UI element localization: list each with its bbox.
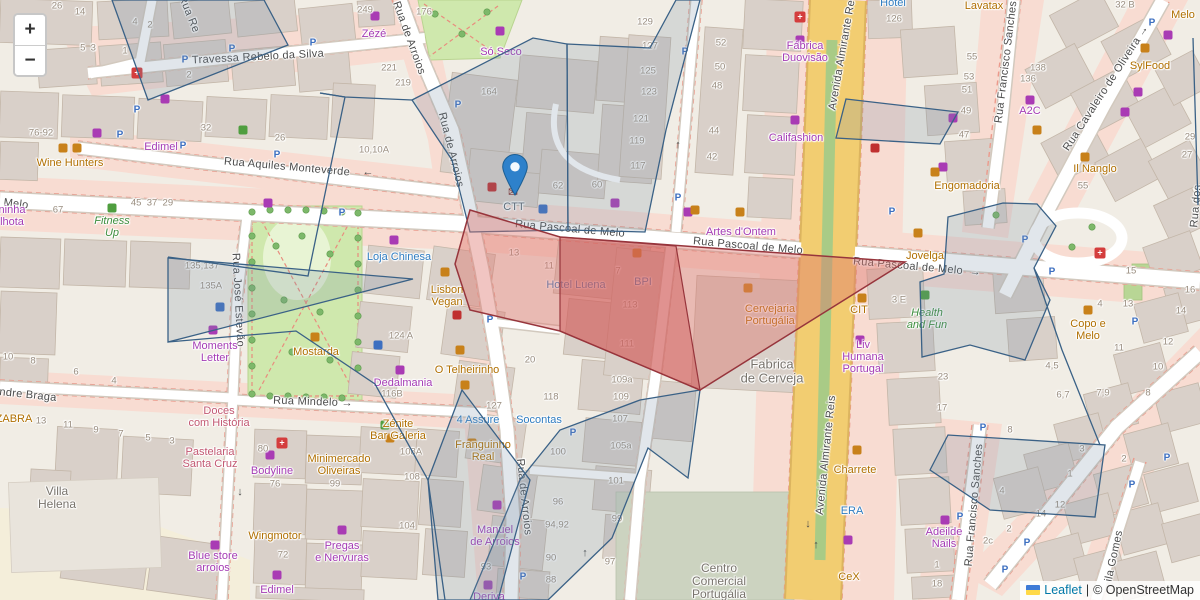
overlay-polygon[interactable] <box>112 0 288 100</box>
overlay-polygon[interactable] <box>168 258 413 342</box>
ukraine-flag-icon <box>1026 585 1040 595</box>
overlay-boundary[interactable] <box>168 331 445 600</box>
overlay-boundary[interactable] <box>320 93 412 100</box>
overlay-layer <box>0 0 1200 600</box>
zoom-out-button[interactable]: − <box>15 45 45 75</box>
overlay-boundary[interactable] <box>1193 38 1198 205</box>
map-marker[interactable] <box>502 154 528 201</box>
overlay-polygon[interactable] <box>930 435 1105 517</box>
attribution-bar: Leaflet | © OpenStreetMap <box>1020 581 1200 600</box>
osm-link[interactable]: © OpenStreetMap <box>1093 583 1194 597</box>
zoom-in-button[interactable]: + <box>15 15 45 45</box>
overlay-polygon[interactable] <box>412 38 568 232</box>
zoom-control: + − <box>13 13 47 77</box>
map-canvas[interactable]: PPPPPPPPPPPPPPPPPPPPPPPPPP++++✉↓↑↑↓↑← Tr… <box>0 0 1200 600</box>
overlay-boundary[interactable] <box>168 93 345 276</box>
overlay-polygon[interactable] <box>920 203 1056 360</box>
overlay-polygon[interactable] <box>836 99 958 144</box>
attribution-separator: | <box>1086 583 1089 597</box>
overlay-polygon[interactable] <box>567 0 700 232</box>
leaflet-link[interactable]: Leaflet <box>1044 583 1082 597</box>
